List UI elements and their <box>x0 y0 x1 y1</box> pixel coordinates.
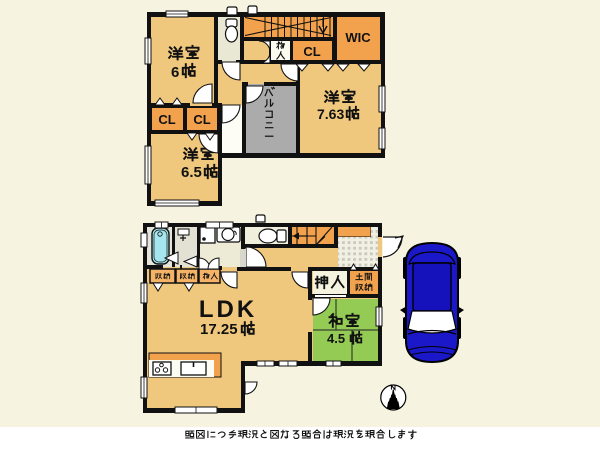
svg-text:CL: CL <box>303 44 320 59</box>
svg-text:LDK: LDK <box>199 296 257 323</box>
svg-text:6.5: 6.5 <box>181 164 202 181</box>
svg-text:6: 6 <box>171 64 179 81</box>
svg-text:CL: CL <box>158 112 175 127</box>
svg-text:17.25: 17.25 <box>200 321 238 338</box>
svg-text:WIC: WIC <box>345 30 371 45</box>
svg-text:7.63: 7.63 <box>317 106 344 122</box>
svg-text:4.5: 4.5 <box>327 331 345 346</box>
svg-text:CL: CL <box>193 112 210 127</box>
